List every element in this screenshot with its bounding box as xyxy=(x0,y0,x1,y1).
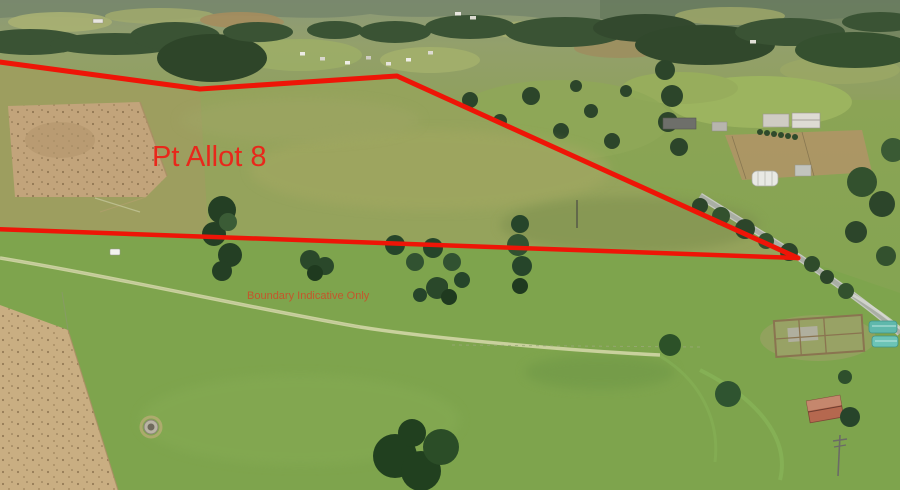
shed-tree xyxy=(840,407,860,427)
dry-paddock xyxy=(8,102,167,212)
vehicle xyxy=(110,249,120,255)
aerial-photo-canvas: Pt Allot 8 Boundary Indicative Only xyxy=(0,0,900,490)
water-trough xyxy=(141,417,161,437)
aerial-photo: Pt Allot 8 Boundary Indicative Only xyxy=(0,0,900,490)
small-tree xyxy=(838,370,852,384)
disclaimer-label: Boundary Indicative Only xyxy=(247,290,370,302)
round-tree xyxy=(715,381,741,407)
round-tree-2 xyxy=(659,334,681,356)
stockyard xyxy=(774,315,864,357)
parcel-label: Pt Allot 8 xyxy=(152,141,266,173)
